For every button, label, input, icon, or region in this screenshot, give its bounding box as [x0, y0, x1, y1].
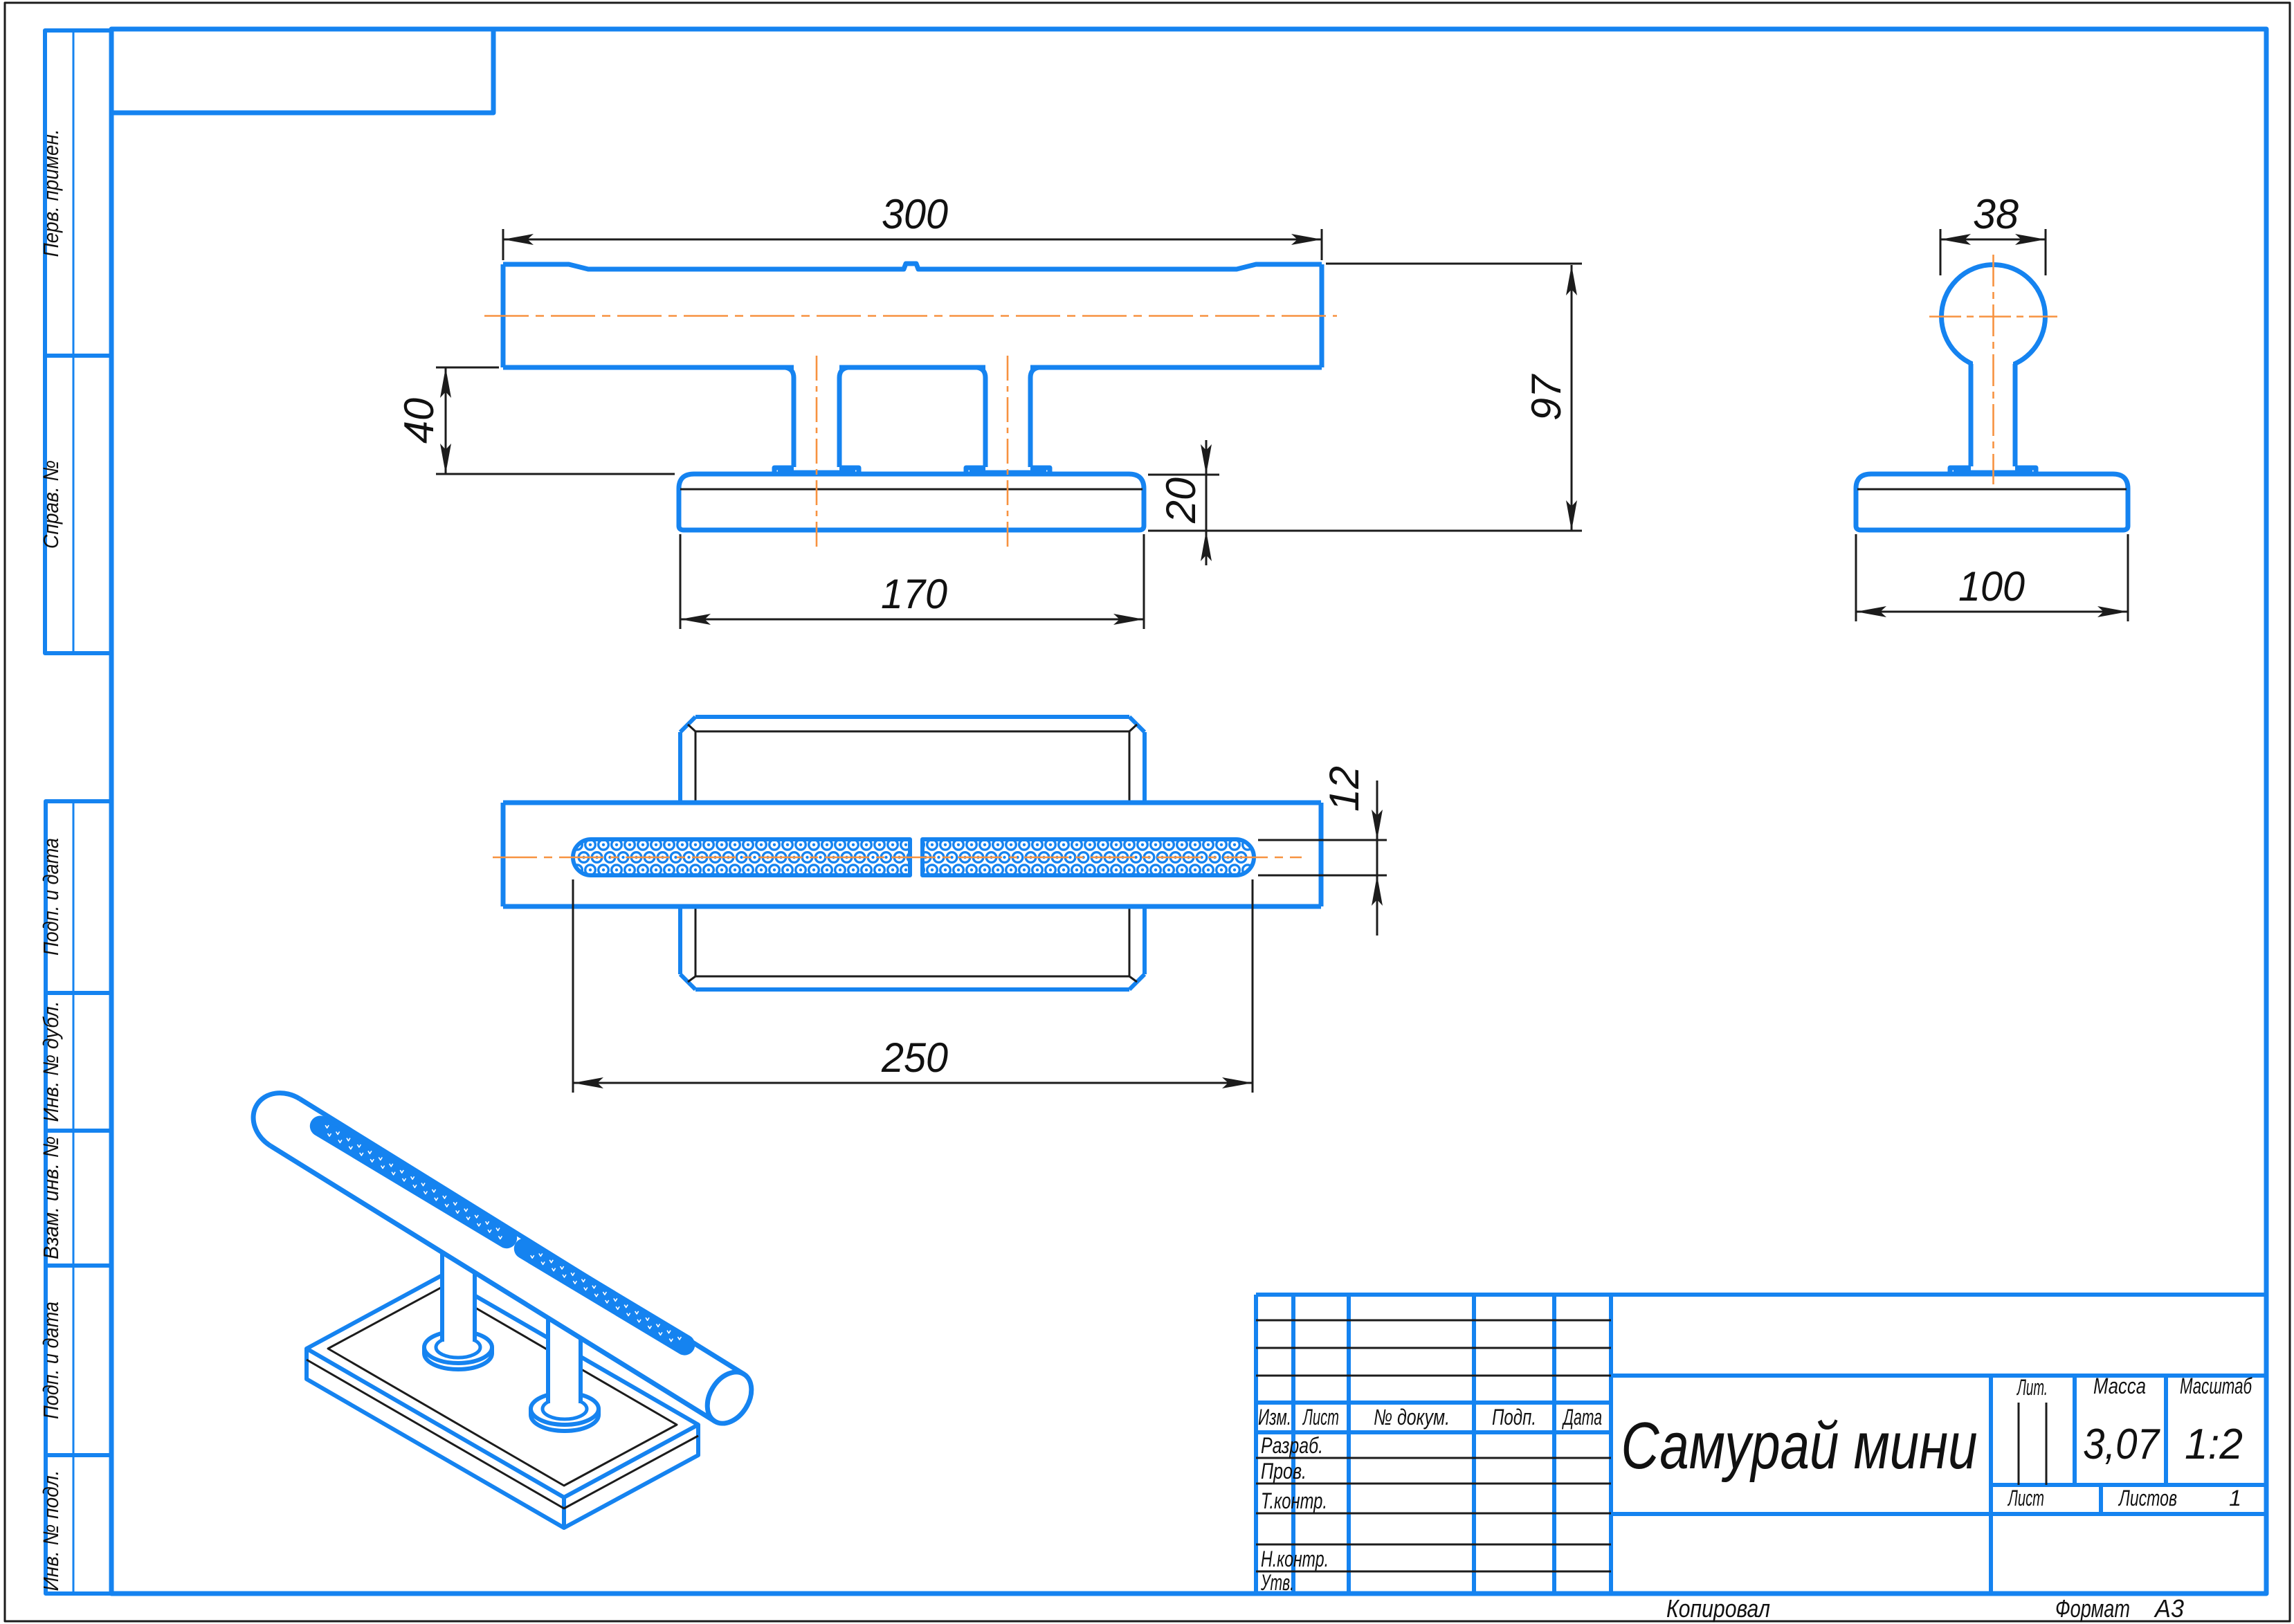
svg-text:40: 40 — [396, 398, 442, 444]
svg-text:Утв.: Утв. — [1260, 1570, 1294, 1595]
svg-text:170: 170 — [881, 571, 947, 617]
svg-text:Разраб.: Разраб. — [1261, 1433, 1323, 1458]
svg-text:Масштаб: Масштаб — [2180, 1374, 2252, 1398]
svg-text:Справ. №: Справ. № — [39, 460, 63, 549]
svg-text:Масса: Масса — [2093, 1374, 2146, 1398]
svg-text:Перв. примен.: Перв. примен. — [39, 129, 63, 257]
svg-text:Подп.: Подп. — [1492, 1405, 1536, 1430]
svg-text:№ докум.: № докум. — [1374, 1405, 1450, 1430]
svg-text:Подп. и дата: Подп. и дата — [39, 838, 63, 956]
svg-text:А3: А3 — [2154, 1594, 2184, 1623]
svg-text:Инв. № подл.: Инв. № подл. — [39, 1470, 63, 1591]
svg-text:Самурай мини: Самурай мини — [1621, 1409, 1978, 1483]
svg-text:38: 38 — [1973, 191, 2019, 237]
svg-text:3,07: 3,07 — [2083, 1421, 2160, 1468]
svg-text:Инв. № дубл.: Инв. № дубл. — [39, 1001, 63, 1122]
svg-text:Т.контр.: Т.контр. — [1261, 1488, 1327, 1513]
svg-text:250: 250 — [881, 1034, 948, 1081]
svg-text:Взам. инв. №: Взам. инв. № — [39, 1136, 63, 1259]
svg-text:Листов: Листов — [2118, 1486, 2177, 1511]
svg-text:Лит.: Лит. — [2017, 1375, 2048, 1400]
svg-text:Пров.: Пров. — [1261, 1459, 1307, 1484]
svg-text:Подп. и дата: Подп. и дата — [39, 1302, 63, 1419]
svg-text:300: 300 — [882, 191, 948, 237]
svg-text:Н.контр.: Н.контр. — [1261, 1547, 1329, 1571]
svg-text:Лист: Лист — [1302, 1405, 1339, 1430]
svg-text:20: 20 — [1158, 477, 1204, 524]
svg-text:1: 1 — [2229, 1486, 2241, 1511]
svg-text:Формат: Формат — [2055, 1594, 2130, 1623]
svg-text:12: 12 — [1321, 766, 1367, 812]
svg-text:1:2: 1:2 — [2185, 1421, 2243, 1468]
svg-text:Лист: Лист — [2008, 1486, 2044, 1511]
svg-text:Дата: Дата — [1562, 1405, 1602, 1430]
svg-text:100: 100 — [1958, 563, 2025, 610]
svg-text:97: 97 — [1523, 373, 1569, 421]
svg-text:Копировал: Копировал — [1666, 1594, 1770, 1623]
svg-text:Изм.: Изм. — [1258, 1405, 1291, 1430]
